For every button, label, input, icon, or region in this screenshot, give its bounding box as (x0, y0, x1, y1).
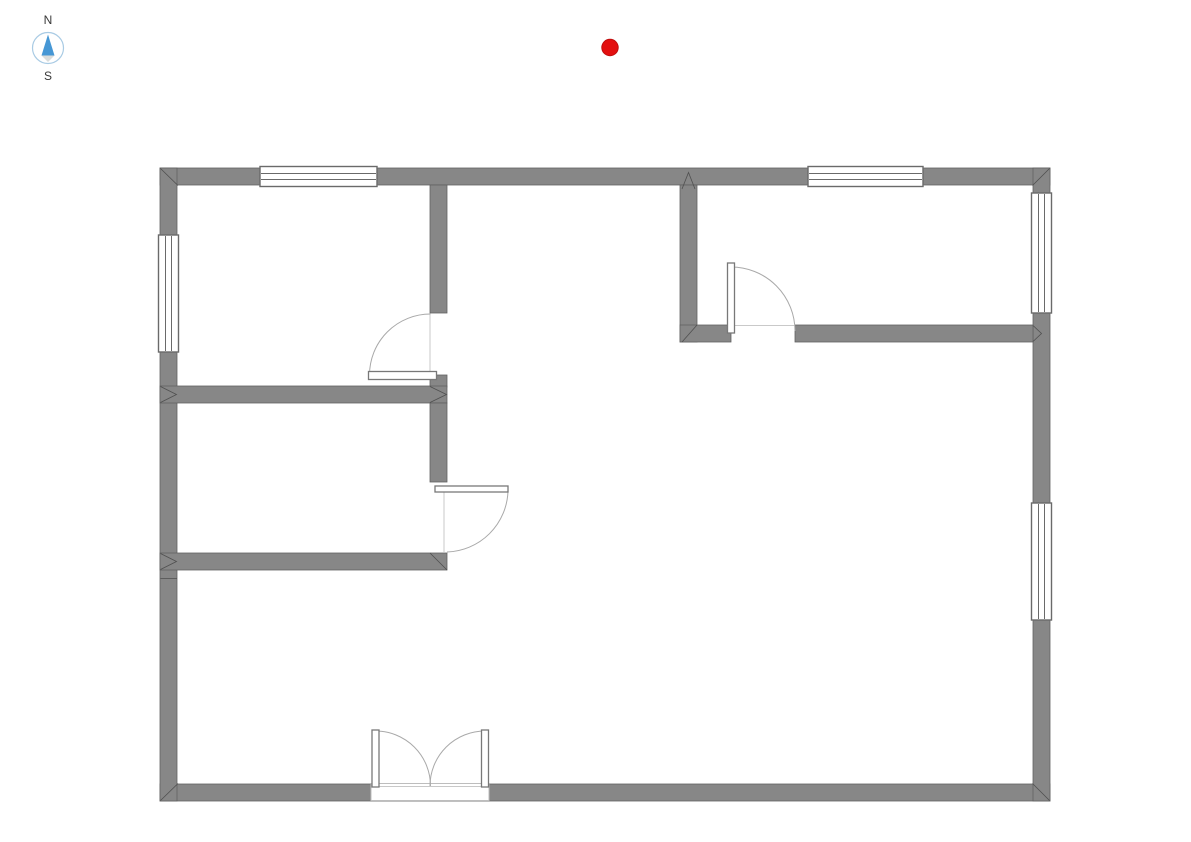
window-left (159, 235, 179, 352)
window-top-left (260, 167, 377, 187)
interior-wall-v2 (430, 403, 447, 482)
door-northeast-room-leaf (728, 263, 735, 333)
compass-rose: N S (0, 0, 96, 96)
entry-double-door-right-swing-arc (430, 731, 485, 786)
interior-wall-h3-left (680, 325, 731, 342)
window-top-right (808, 167, 923, 187)
plan-layer (159, 167, 1052, 802)
door-northwest-room-swing-arc (370, 314, 431, 375)
entry-double-door-left-leaf (372, 730, 379, 787)
door-west-room-leaf (435, 486, 508, 492)
entry-double-door-right-leaf (482, 730, 489, 787)
interior-wall-v1 (430, 185, 447, 313)
location-marker[interactable] (602, 39, 618, 55)
window-right-lower (1032, 503, 1052, 620)
interior-wall-h3-right (795, 325, 1033, 342)
interior-wall-h2 (160, 553, 447, 570)
floorplan-canvas[interactable]: N S (0, 0, 1191, 842)
compass-north-label: N (44, 13, 53, 27)
window-right-upper (1032, 193, 1052, 313)
entry-double-door-left-swing-arc (376, 731, 431, 786)
door-west-room-swing-arc (447, 491, 508, 552)
outer-wall-bottom (160, 784, 1050, 801)
interior-wall-v3 (680, 185, 697, 342)
compass-south-label: S (44, 69, 52, 83)
interior-wall-h1 (160, 386, 447, 403)
floorplan-drawing (0, 0, 1191, 842)
door-northeast-room-swing-arc (731, 267, 795, 331)
door-northwest-room-leaf (369, 372, 437, 380)
